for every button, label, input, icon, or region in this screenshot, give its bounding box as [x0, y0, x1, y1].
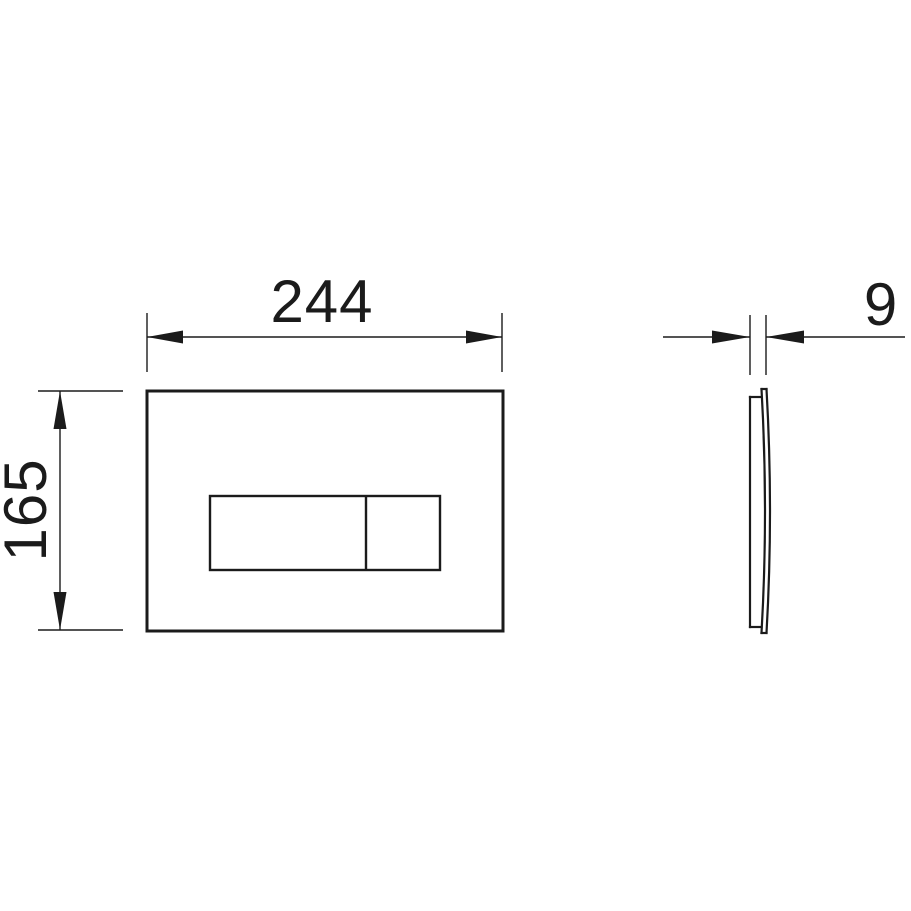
side-view: [750, 389, 770, 633]
plate-outline: [147, 391, 503, 631]
front-view: [147, 391, 503, 631]
profile-front-outer-curve: [767, 389, 771, 633]
thickness-arrow-left-icon: [712, 331, 750, 344]
technical-drawing-canvas: 244 165 9: [0, 0, 911, 911]
height-arrow-bottom-icon: [54, 592, 67, 630]
profile-front-inner-curve: [762, 389, 766, 633]
thickness-arrow-right-icon: [766, 331, 804, 344]
height-arrow-top-icon: [54, 391, 67, 429]
width-dimension-label: 244: [270, 268, 373, 335]
width-arrow-left-icon: [147, 331, 183, 344]
thickness-dimension: 9: [663, 271, 905, 375]
width-arrow-right-icon: [466, 331, 502, 344]
width-dimension: 244: [147, 268, 502, 372]
flush-plate-drawing: 244 165 9: [0, 0, 911, 911]
height-dimension: 165: [0, 391, 123, 630]
thickness-dimension-label: 9: [864, 271, 898, 338]
button-recess-outline: [210, 496, 440, 570]
height-dimension-label: 165: [0, 458, 59, 561]
